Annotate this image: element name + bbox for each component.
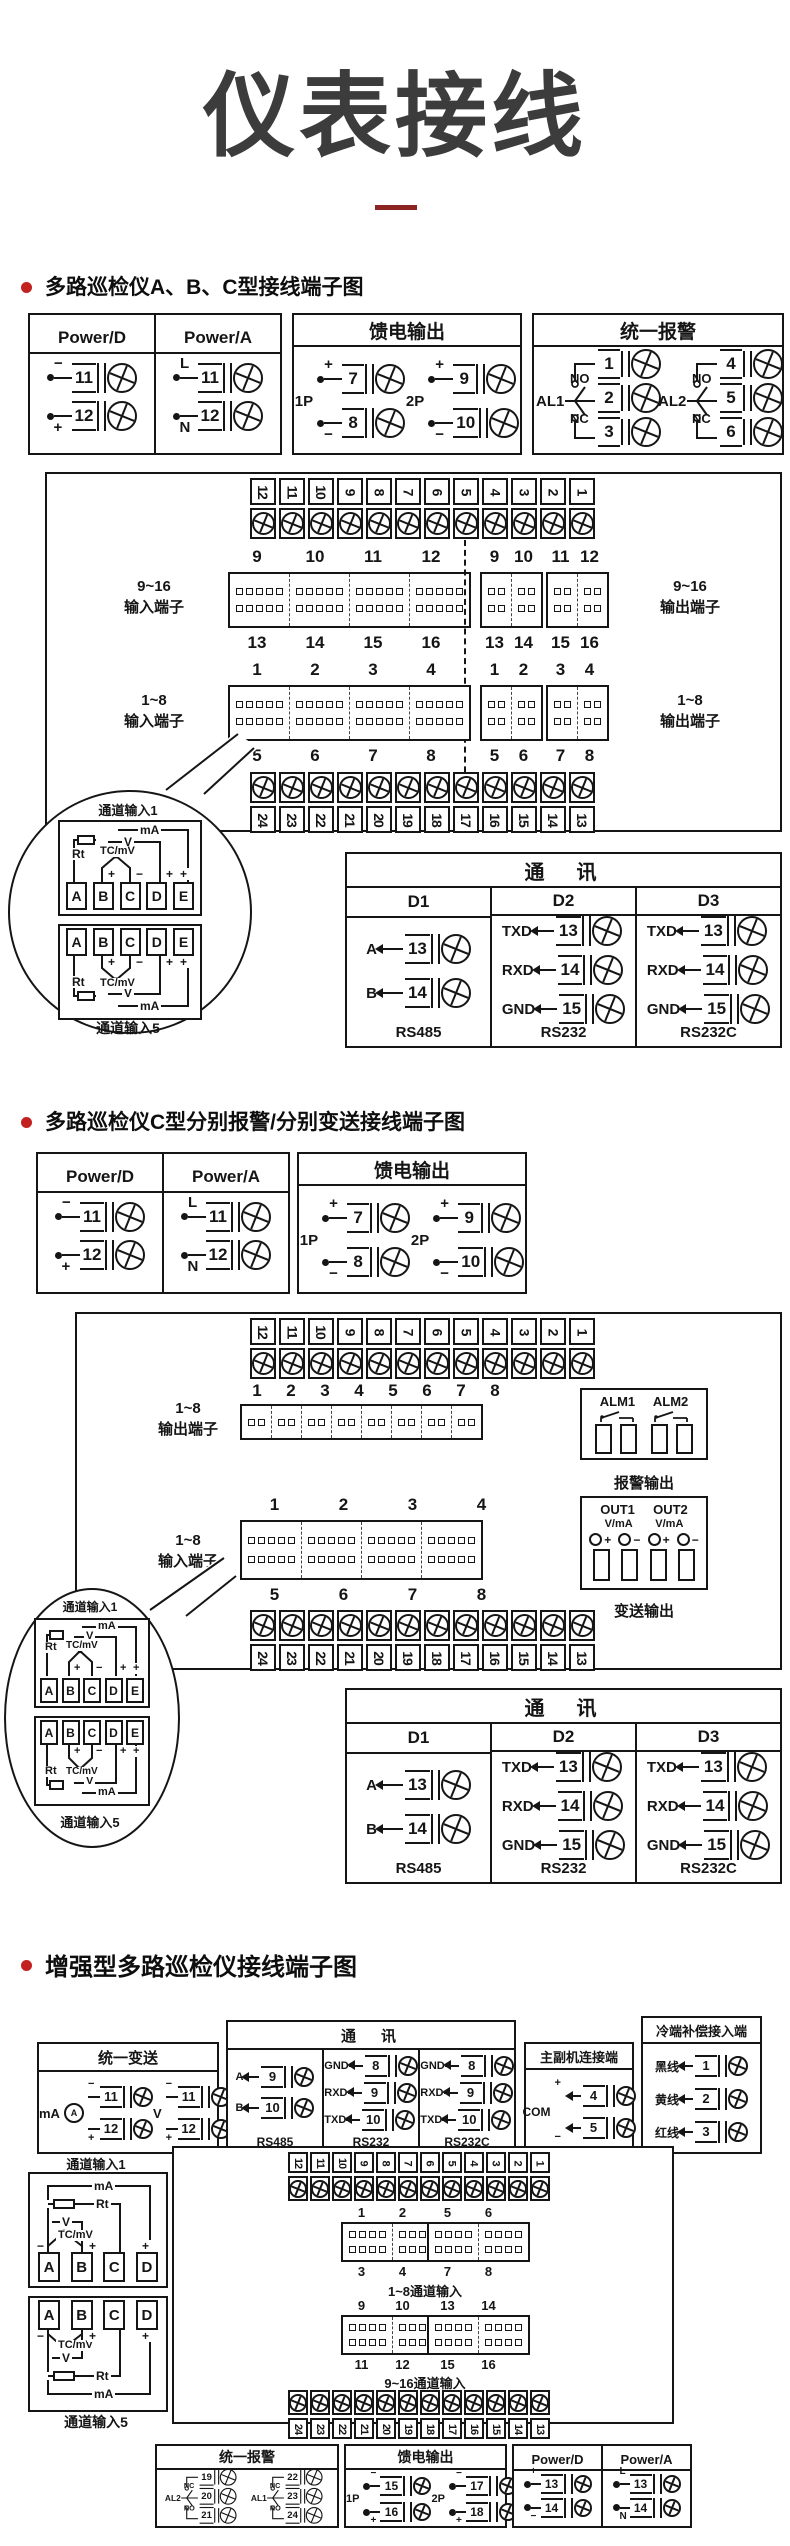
pin [408, 1556, 415, 1563]
pin [268, 1537, 275, 1544]
strip-cell: 8 [366, 478, 392, 539]
pin [505, 2231, 512, 2238]
minus-sign: − [134, 868, 145, 880]
pin [446, 605, 453, 612]
terminal: −11 [55, 1202, 145, 1232]
screw-terminal-icon [740, 1830, 770, 1860]
strip-screw-box [308, 1610, 334, 1641]
strip-number: 1 [569, 478, 595, 505]
terminal-number: 12 [100, 2118, 122, 2140]
pin [349, 2231, 356, 2238]
strip-cell: 18 [420, 2390, 440, 2439]
terminal-number: 18 [466, 2502, 488, 2522]
strip-number: 24 [250, 806, 276, 833]
rail [621, 419, 630, 445]
pin [398, 1419, 405, 1426]
pin [348, 1556, 355, 1563]
pin-row [416, 701, 463, 708]
screw-terminal-icon [241, 1240, 271, 1270]
strip-number: 3 [511, 478, 537, 505]
screw-terminal-icon [220, 2488, 237, 2505]
terminal-number: 7 [347, 1203, 369, 1233]
strip-cell: 11 [279, 478, 305, 539]
strip-cell: 16 [482, 772, 508, 833]
wire: − [88, 2096, 100, 2098]
rail [431, 978, 440, 1008]
group-label: 2P [406, 393, 424, 410]
signal-label: GND [647, 1837, 680, 1854]
screw-terminal-icon [355, 2394, 373, 2412]
strip-cell: 16 [482, 1610, 508, 1671]
group-label: V [153, 2106, 162, 2121]
pin [336, 718, 343, 725]
terminal-number: 15 [704, 1830, 729, 1860]
pin-row [518, 718, 535, 725]
strip-screw-box [398, 2390, 418, 2415]
s3-ch916-top-labels-a: 910 [341, 2299, 423, 2313]
screw-terminal-icon [310, 512, 333, 535]
pin-row [428, 1537, 475, 1544]
terminal: N12 [173, 401, 264, 431]
strip-screw-box [337, 1348, 363, 1379]
pin [378, 1537, 385, 1544]
terminal-letter: B [62, 1678, 80, 1703]
terminal-number: 10 [453, 408, 478, 438]
s1-power-box: Power/D −11 +12 Power/A L11 N12 [28, 313, 282, 455]
rail [370, 1247, 379, 1277]
strip-number: 17 [453, 806, 479, 833]
wire-dot [322, 1259, 329, 1266]
pin [399, 2339, 406, 2346]
rail [606, 2117, 615, 2139]
terminal-number: 12 [178, 2118, 200, 2140]
strip-cell: 17 [453, 1610, 479, 1671]
strip-number: 4 [464, 2152, 484, 2173]
terminal-letter: C [103, 2252, 125, 2282]
plus-sign: + [106, 956, 117, 968]
pin-row [488, 605, 505, 612]
terminal: +12 [47, 401, 138, 431]
signal-label: TXD [647, 1759, 677, 1776]
screw-terminal-icon [421, 2180, 439, 2198]
screw-terminal-icon [252, 1614, 275, 1637]
pin-row [368, 1419, 385, 1426]
strip-cell: 7 [398, 2152, 418, 2201]
wire-dot [47, 413, 54, 420]
rail [431, 934, 440, 964]
s1-feed-title: 馈电输出 [294, 315, 520, 347]
rt-label: Rt [43, 1766, 59, 1777]
strip-number: 18 [424, 1644, 450, 1671]
strip-screw-box [308, 1348, 334, 1379]
strip-cell: 15 [511, 772, 537, 833]
screw-terminal-icon [441, 978, 471, 1008]
comm-terminal: GND8 [420, 2055, 513, 2077]
screw-terminal-icon [252, 512, 275, 535]
pin [584, 718, 591, 725]
wire: L [180, 377, 198, 379]
screw-terminal-icon [574, 2499, 592, 2517]
pin [458, 1419, 465, 1426]
pin [428, 1556, 435, 1563]
rail [214, 2470, 219, 2485]
pin-row [248, 1556, 295, 1563]
screw-terminal-icon [375, 364, 405, 394]
ma-label: mA [138, 1000, 161, 1012]
strip-cell: 12 [250, 1318, 276, 1379]
terminal-number: 5 [720, 383, 742, 413]
screw-terminal-icon [289, 2180, 307, 2198]
pin [518, 605, 525, 612]
screw-terminal-icon [310, 776, 333, 799]
rail [653, 2498, 662, 2518]
strip-screw-box [376, 2176, 396, 2201]
s1-feed-group-2p: 2P +9 −10 [406, 364, 519, 438]
screw-terminal-icon [465, 2180, 483, 2198]
pin [368, 1537, 375, 1544]
pin-row [236, 605, 283, 612]
s3-alarm-title: 统一报警 [157, 2446, 337, 2470]
terminal-number: 14 [558, 955, 583, 985]
s1-alarm-title: 统一报警 [534, 315, 782, 347]
terminal-number: 9 [261, 2066, 283, 2088]
pin [435, 2246, 442, 2253]
terminal: 5 [720, 385, 783, 411]
terminal: 黄线2 [655, 2088, 748, 2110]
strip-number: 5 [453, 478, 479, 505]
terminal-number: 13 [701, 1752, 726, 1782]
minus-sign: − [94, 1746, 104, 1757]
pin [246, 588, 253, 595]
s1-alarm-group-al1: AL1 NO NC 1 2 3 [538, 351, 656, 455]
strip-screw-box [511, 1348, 537, 1379]
arrow-left-icon [534, 1805, 556, 1807]
vma-label: V/mA [605, 1518, 633, 1530]
strip-screw-box [511, 508, 537, 539]
terminal-number: 14 [558, 1791, 583, 1821]
terminal-number: 8 [342, 408, 364, 438]
tc-label: TC/mV [98, 846, 137, 857]
strip-screw-box [288, 2176, 308, 2201]
rail [489, 2476, 498, 2496]
terminal-number: 12 [72, 401, 97, 431]
terminal-number: 14 [630, 2498, 652, 2518]
section3-heading: 增强型多路巡检仪接线端子图 [45, 1947, 357, 1982]
s2-comm-col-d3: D3 TXD13 RXD14 GND15 RS232C [637, 1724, 780, 1884]
pin [256, 605, 263, 612]
pin [348, 1419, 355, 1426]
comm-standard-label: RS232 [541, 1860, 587, 1884]
rail [481, 2109, 490, 2131]
strip-number: 13 [569, 1644, 595, 1671]
pin-row [308, 1537, 355, 1544]
screw-terminal-icon [281, 776, 304, 799]
screw-terminal-icon [441, 1770, 471, 1800]
nc-label: NC [184, 2481, 195, 2489]
comm-terminal: RXD14 [647, 955, 770, 985]
strip-screw-box [279, 772, 305, 803]
strip-number: 23 [279, 806, 305, 833]
strip-screw-box [279, 508, 305, 539]
screw-terminal-icon [115, 1240, 145, 1270]
pin [416, 605, 423, 612]
screw-terminal-icon [426, 512, 449, 535]
screw-terminal-icon [281, 512, 304, 535]
strip-screw-box [420, 2390, 440, 2415]
pin [468, 1419, 475, 1426]
terminal-number: 1 [598, 349, 620, 379]
pin [378, 1556, 385, 1563]
group-label: 1P [300, 1232, 318, 1249]
pin [594, 718, 601, 725]
pin [398, 1556, 405, 1563]
strip-screw-box [398, 2176, 418, 2201]
wire: N [620, 2507, 630, 2509]
pin [248, 1419, 255, 1426]
strip-number: 10 [332, 2152, 352, 2173]
pin [236, 588, 243, 595]
strip-number: 15 [511, 1644, 537, 1671]
rt-label: Rt [94, 2370, 111, 2382]
pin [288, 1419, 295, 1426]
pin-row [356, 605, 403, 612]
terminal-number: 14 [405, 1814, 430, 1844]
terminal-letter: B [62, 1720, 80, 1745]
strip-screw-box [279, 1610, 305, 1641]
terminal-letters: ABCDE [40, 1720, 144, 1745]
wire-dot [433, 1259, 440, 1266]
comm-terminal: A13 [366, 934, 471, 964]
pin [388, 1556, 395, 1563]
s2-comm-title: 通 讯 [347, 1690, 780, 1724]
strip-cell: 16 [464, 2390, 484, 2439]
pin-row [584, 588, 601, 595]
terminal: N14 [613, 2498, 681, 2518]
s1-feed-box: 馈电输出 1P +7 −8 2P +9 −10 [292, 313, 522, 455]
pin [485, 2231, 492, 2238]
screw-terminal-icon [305, 2507, 322, 2524]
pin [458, 1537, 465, 1544]
terminal: +4 [555, 2085, 636, 2107]
terminal-number: 13 [556, 916, 581, 946]
screw-terminal-icon [542, 776, 565, 799]
arrow-left-icon [444, 2092, 458, 2094]
strip-cell: 4 [482, 1318, 508, 1379]
rt-label: Rt [70, 976, 87, 988]
terminal-letter: A [66, 882, 87, 910]
s3-comm-col-rs232: GND8 RXD9 TXD10 RS232 [324, 2050, 420, 2154]
pin [458, 1556, 465, 1563]
pin [488, 718, 495, 725]
wire-dot [524, 2481, 531, 2488]
strip-number: 13 [530, 2418, 550, 2439]
rail [730, 994, 739, 1024]
screw-terminal-icon [494, 1247, 524, 1277]
plus-sign: + [118, 1746, 128, 1757]
pin [564, 701, 571, 708]
pin [498, 588, 505, 595]
pin [438, 1537, 445, 1544]
comm-terminal: TXD13 [647, 916, 770, 946]
pin [455, 2246, 462, 2253]
screw-terminal-icon [294, 2067, 314, 2087]
vma-label: V/mA [655, 1518, 683, 1530]
strip-cell: 17 [453, 772, 479, 833]
terminal-number: 13 [405, 934, 430, 964]
pin-row [584, 718, 601, 725]
s3-alarm-box: 统一报警 AL2 NC NO 19 20 21 [155, 2444, 339, 2528]
strip-cell: 3 [511, 1318, 537, 1379]
pin-row [349, 2339, 386, 2346]
pin [436, 588, 443, 595]
terminal-number: 21 [200, 2507, 214, 2524]
comm-standard-label: RS232C [680, 1024, 737, 1048]
s2-power-d-col: Power/D −11 +12 [38, 1154, 164, 1292]
rail [479, 408, 488, 438]
strip-number: 22 [332, 2418, 352, 2439]
terminal-number: 11 [100, 2086, 122, 2108]
strip-number: 17 [442, 2418, 462, 2439]
strip-number: 5 [453, 1318, 479, 1345]
pin [409, 2246, 416, 2253]
terminal-number: 10 [458, 1247, 483, 1277]
strip-number: 19 [395, 1644, 421, 1671]
screw-terminal-icon [737, 916, 767, 946]
strip-number: 22 [308, 806, 334, 833]
terminal: 1 [598, 351, 661, 377]
terminal-letter: D [136, 2252, 158, 2282]
strip-number: 10 [308, 478, 334, 505]
callout-tail [148, 732, 264, 798]
rail [585, 1830, 594, 1860]
strip-cell: 12 [288, 2152, 308, 2201]
pin [258, 1537, 265, 1544]
s1-channel1-label: 通道输入1 [68, 800, 188, 819]
screw-terminal-icon [399, 2180, 417, 2198]
pin [528, 701, 535, 708]
terminal-letter: D [105, 1678, 123, 1703]
plus-sign: + [72, 1746, 82, 1757]
s2-channel5-detail: mA V Rt TC/mV + − + + ABCDE [34, 1716, 150, 1806]
screw-terminal-icon [421, 2394, 439, 2412]
comm-terminal: GND8 [324, 2055, 417, 2077]
pin-row [584, 605, 601, 612]
terminal-letter: C [103, 2300, 125, 2330]
s1-out916-top-labels-b: 1112 [546, 548, 604, 567]
pin [408, 1419, 415, 1426]
strip-number: 12 [250, 478, 276, 505]
comm-col-head: D2 [492, 1724, 635, 1752]
comm-standard-label: RS232 [541, 1024, 587, 1048]
terminal-number: 13 [541, 2474, 563, 2494]
s1-alarm-group-al2: AL2 NO NC 4 5 6 [660, 351, 778, 455]
pin [266, 718, 273, 725]
strip-cell: 2 [540, 1318, 566, 1379]
pin [554, 701, 561, 708]
pin [416, 718, 423, 725]
rail [718, 2088, 727, 2110]
screw-terminal-icon [738, 1791, 768, 1821]
pin [349, 2339, 356, 2346]
pin [276, 718, 283, 725]
screw-terminal-icon [571, 1614, 594, 1637]
strip-number: 8 [366, 1318, 392, 1345]
wire: + [456, 2511, 466, 2513]
pin-row [349, 2246, 386, 2253]
pin [488, 588, 495, 595]
terminal: 22 [285, 2470, 322, 2485]
screw-terminal-icon [631, 383, 661, 413]
screw-terminal-icon [397, 512, 420, 535]
com-label: COM [523, 2105, 551, 2119]
plus-sign: + [140, 2240, 151, 2252]
terminal-number: 8 [461, 2055, 483, 2077]
strip-screw-box [424, 1348, 450, 1379]
relay-contact-icon [562, 351, 596, 451]
screw-terminal-icon [455, 776, 478, 799]
pin-row [488, 701, 505, 708]
pin-row [554, 701, 571, 708]
section2-heading: 多路巡检仪C型分别报警/分别变送接线端子图 [45, 1106, 465, 1136]
screw-terminal-icon [513, 1352, 536, 1375]
strip-cell: 15 [511, 1610, 537, 1671]
s2-comm-col-d1: D1 A13 B14 RS485 [347, 1724, 492, 1884]
pin [416, 701, 423, 708]
terminal-number: 13 [630, 2474, 652, 2494]
terminal: 19 [200, 2470, 237, 2485]
strip-cell: 2 [508, 2152, 528, 2201]
screw-terminal-icon [455, 1614, 478, 1637]
pin [448, 1537, 455, 1544]
strip-cell: 2 [540, 478, 566, 539]
output-circle-icon [618, 1533, 631, 1546]
s3-transmit-title: 统一变送 [39, 2044, 217, 2072]
pin [328, 1556, 335, 1563]
terminal: −11 [47, 363, 137, 393]
pin [436, 718, 443, 725]
s1-channel5-detail: mA V Rt TC/mV + − + + ABCDE [58, 924, 202, 1020]
rail [365, 408, 374, 438]
s3-top-strip: 121110987654321 [288, 2152, 550, 2201]
strip-cell: 12 [250, 478, 276, 539]
screw-terminal-icon [252, 1352, 275, 1375]
terminal: 21 [200, 2508, 237, 2523]
wire-dot [55, 1252, 62, 1259]
pin [468, 1537, 475, 1544]
pin [248, 1537, 255, 1544]
strip-screw-box [424, 508, 450, 539]
s3-power-d-col: Power/D +13 −14 [514, 2446, 603, 2526]
pin-row [398, 1419, 415, 1426]
pin [518, 701, 525, 708]
pin [276, 701, 283, 708]
wire-color-label: 黄线 [655, 2091, 679, 2108]
comm-terminal: RXD14 [647, 1791, 770, 1821]
terminal-number: 2 [598, 383, 620, 413]
rail [388, 2055, 397, 2077]
strip-number: 9 [337, 1318, 363, 1345]
comm-terminal: TXD13 [647, 1752, 770, 1782]
pin [366, 605, 373, 612]
rail [214, 2508, 219, 2523]
s3-transmit-box: 统一变送 mA A −11 +12 V −11 +12 [37, 2042, 219, 2154]
alm2-terminals [651, 1424, 693, 1454]
terminal-number: 7 [342, 364, 364, 394]
strip-cell: 20 [376, 2390, 396, 2439]
pin [369, 2246, 376, 2253]
pin [349, 2246, 356, 2253]
arrow-left-icon [349, 2065, 363, 2067]
